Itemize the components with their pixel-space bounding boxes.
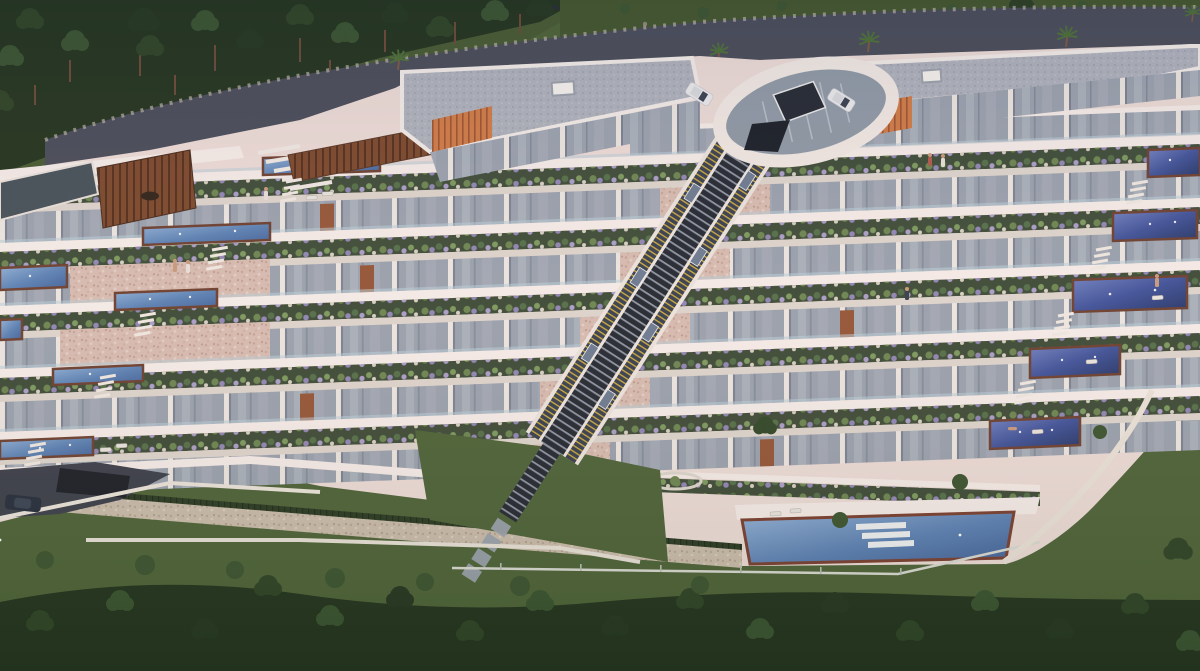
dusk-overlay xyxy=(0,0,1200,671)
render-stage xyxy=(0,0,1200,671)
aerial-render xyxy=(0,0,1200,671)
